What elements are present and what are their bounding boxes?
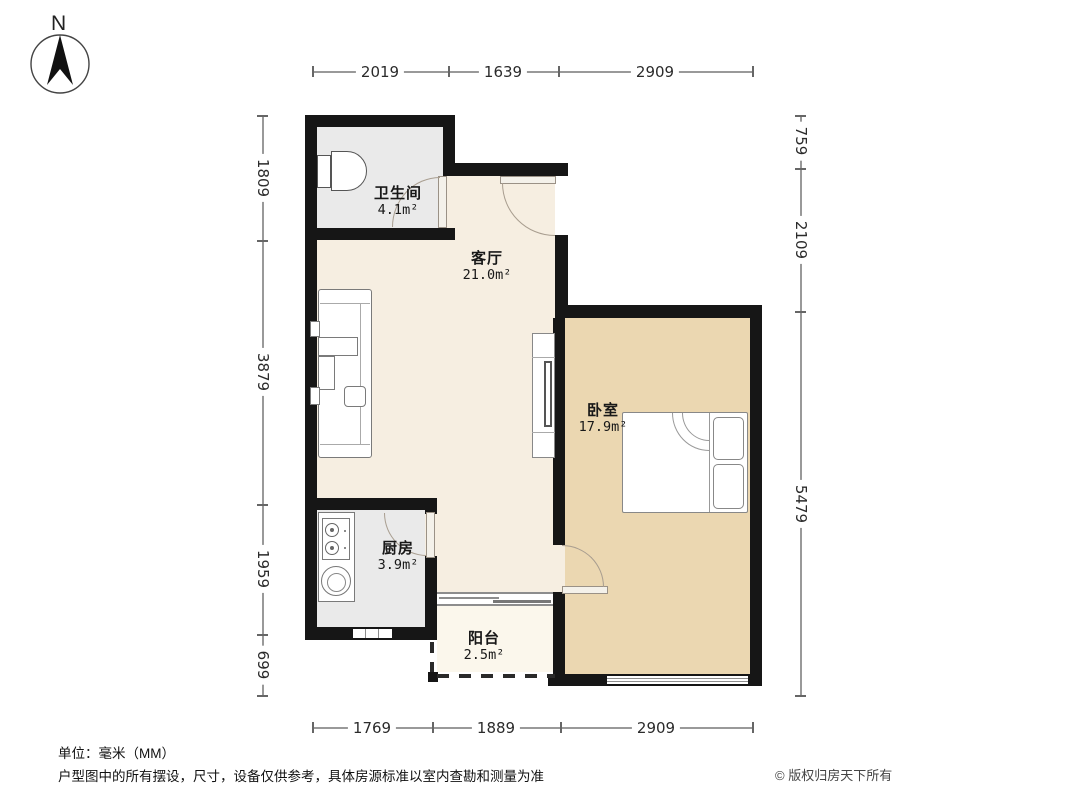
living-floor-lower [425, 498, 555, 592]
dim-value: 1809 [254, 154, 272, 202]
sofa-line [320, 303, 370, 304]
bedroom-door-leaf [562, 586, 608, 594]
dim-value: 2909 [631, 63, 679, 81]
wall-outer-left [305, 115, 317, 640]
stool [344, 386, 366, 407]
bed-line [709, 413, 710, 512]
dim-tick [795, 168, 806, 170]
bathroom-label: 卫生间 4.1m² [374, 185, 422, 220]
dim-value: 1639 [479, 63, 527, 81]
copyright: © 版权归房天下所有 [775, 765, 892, 784]
window-line [439, 597, 499, 599]
wall-bathroom-top [305, 115, 455, 127]
room-area: 21.0m² [463, 267, 512, 285]
balcony-label: 阳台 2.5m² [464, 630, 505, 665]
dim-tick [257, 115, 268, 117]
dim-line-right [800, 115, 802, 696]
room-name: 卫生间 [374, 185, 422, 202]
unit-note: 单位：毫米（MM） [58, 742, 175, 762]
dim-value: 2909 [632, 719, 680, 737]
balcony-sliding-window [437, 592, 553, 606]
north-arrow-icon: N [18, 6, 108, 106]
cabinet-line [532, 357, 555, 358]
wall-bedroom-top [555, 305, 762, 318]
balcony-dashed-edge-left [430, 642, 434, 672]
wall-bedroom-west-lower [553, 592, 565, 686]
floor-plan: N 房天下 fang.com 房天下 fang.com [0, 0, 1066, 800]
dim-tick [560, 722, 562, 733]
tv [544, 361, 552, 427]
dim-tick [257, 634, 268, 636]
svg-text:N: N [51, 12, 66, 35]
pillow [713, 464, 744, 509]
dim-tick [257, 695, 268, 697]
burner-dot [330, 528, 334, 532]
dim-value: 2109 [792, 216, 810, 264]
dim-line-left [262, 115, 264, 696]
window-line [607, 681, 748, 682]
pillow [713, 417, 744, 460]
dim-value: 5479 [792, 480, 810, 528]
sofa-line [320, 444, 370, 445]
wall-bathroom-bottom [305, 228, 455, 240]
dim-value: 759 [792, 122, 810, 161]
room-name: 厨房 [378, 540, 419, 557]
window-line [493, 600, 551, 603]
kitchen-label: 厨房 3.9m² [378, 540, 419, 575]
toilet-tank [317, 155, 331, 188]
stove-knob [344, 530, 346, 532]
bedroom-label: 卧室 17.9m² [579, 402, 628, 437]
sofa-chaise [318, 356, 335, 390]
disclaimer: 户型图中的所有摆设，尺寸，设备仅供参考，具体房源标准以室内查勘和测量为准 [58, 765, 544, 785]
room-area: 17.9m² [579, 419, 628, 437]
sink-basin [327, 573, 346, 592]
dim-tick [795, 115, 806, 117]
room-area: 3.9m² [378, 557, 419, 575]
dim-value: 1959 [254, 545, 272, 593]
room-name: 阳台 [464, 630, 505, 647]
living-room-label: 客厅 21.0m² [463, 250, 512, 285]
dim-tick [448, 66, 450, 77]
dim-tick [312, 722, 314, 733]
kitchen-window [353, 627, 392, 640]
dim-tick [795, 695, 806, 697]
bedroom-window [607, 674, 748, 686]
room-area: 4.1m² [374, 202, 422, 220]
sofa-arm [310, 321, 320, 337]
dim-tick [312, 66, 314, 77]
burner-dot [330, 546, 334, 550]
window-line [365, 629, 366, 638]
dim-value: 3879 [254, 348, 272, 396]
dim-tick [558, 66, 560, 77]
dim-tick [752, 66, 754, 77]
cabinet-line [532, 432, 555, 433]
dim-tick [432, 722, 434, 733]
kitchen-door-leaf [426, 512, 435, 558]
dim-tick [257, 504, 268, 506]
dim-tick [795, 311, 806, 313]
stove-knob [344, 547, 346, 549]
wall-living-top [443, 163, 568, 176]
dim-value: 1769 [348, 719, 396, 737]
dim-tick [257, 240, 268, 242]
dim-value: 699 [254, 646, 272, 685]
window-line [378, 629, 379, 638]
wall-kitchen-top [305, 498, 430, 510]
sofa-line [360, 303, 361, 445]
dim-tick [752, 722, 754, 733]
room-name: 卧室 [579, 402, 628, 419]
dim-value: 2019 [356, 63, 404, 81]
sofa-arm [310, 387, 320, 405]
side-table [318, 337, 358, 356]
dim-value: 1889 [472, 719, 520, 737]
wall-outer-right [750, 305, 762, 686]
window-line [607, 678, 748, 679]
room-area: 2.5m² [464, 647, 505, 665]
balcony-dashed-edge-bottom [437, 674, 555, 678]
room-name: 客厅 [463, 250, 512, 267]
